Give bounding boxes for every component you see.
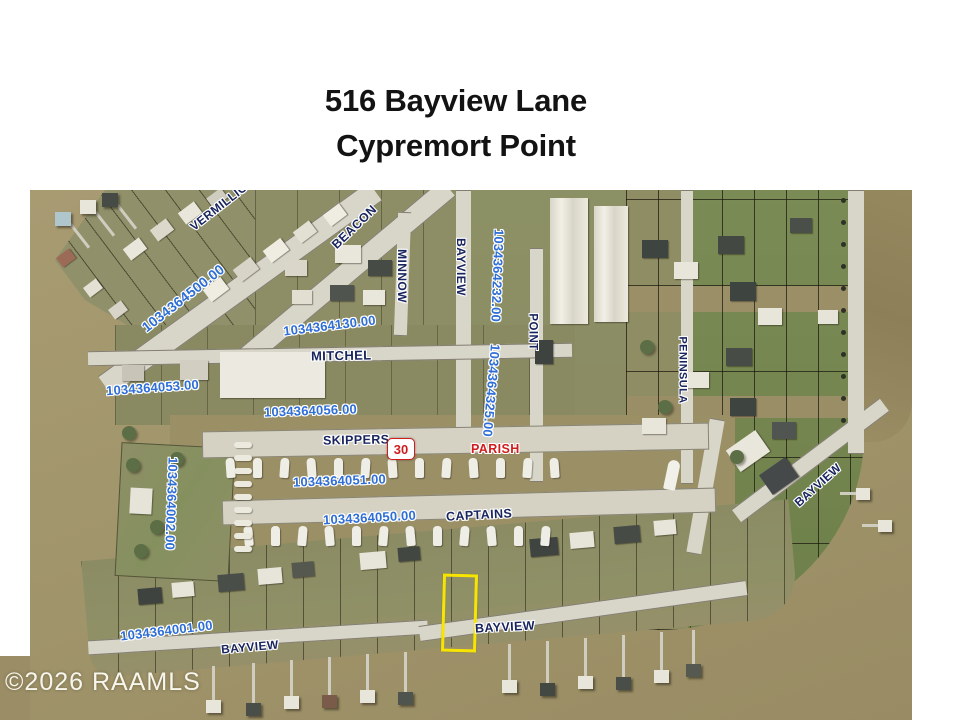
boat <box>496 458 505 478</box>
pier <box>328 657 331 695</box>
boat <box>234 455 252 461</box>
boat <box>234 468 252 474</box>
parish-label: PARISH <box>471 442 520 456</box>
boat <box>540 526 551 547</box>
boat <box>271 526 280 546</box>
boat <box>387 458 397 479</box>
bush <box>841 264 846 269</box>
pier <box>290 660 293 696</box>
boat <box>297 526 308 547</box>
street-label-skippers: SKIPPERS <box>323 432 390 447</box>
pier <box>94 211 115 236</box>
boathouse <box>284 696 299 709</box>
boat <box>234 481 252 487</box>
building <box>220 352 325 398</box>
bush <box>841 418 846 423</box>
bush <box>841 308 846 313</box>
building <box>292 290 312 304</box>
building <box>726 348 752 366</box>
route-30-number: 30 <box>394 442 408 457</box>
building <box>685 372 709 388</box>
building <box>730 282 756 301</box>
tree <box>126 458 140 472</box>
boathouse <box>540 683 555 696</box>
building <box>56 248 76 267</box>
boat <box>486 526 497 547</box>
tree <box>730 450 744 464</box>
pier <box>252 663 255 703</box>
boat <box>253 458 262 478</box>
building <box>674 262 698 279</box>
boat <box>234 520 252 526</box>
boat <box>459 526 470 547</box>
building <box>363 290 385 305</box>
page-title-line2: Cypremort Point <box>0 123 912 168</box>
building <box>293 220 317 243</box>
building <box>368 260 392 276</box>
pier <box>622 635 625 677</box>
building <box>772 422 796 439</box>
page-title-line1: 516 Bayview Lane <box>0 78 912 123</box>
building <box>758 308 782 325</box>
boathouse <box>856 488 870 500</box>
building <box>550 198 588 324</box>
pier <box>404 652 407 692</box>
boat <box>415 458 424 478</box>
boat <box>378 526 389 547</box>
boathouse <box>654 670 669 683</box>
tree <box>122 426 136 440</box>
street-label-mitchel: MITCHEL <box>311 347 372 363</box>
building <box>397 546 420 562</box>
building <box>323 203 347 226</box>
boat <box>234 546 252 552</box>
building <box>150 218 174 241</box>
building <box>359 551 386 570</box>
boathouse <box>578 676 593 689</box>
boat <box>324 526 335 547</box>
tree <box>640 340 654 354</box>
pier <box>584 638 587 676</box>
boat <box>522 458 532 479</box>
boat <box>549 458 559 479</box>
bush <box>841 352 846 357</box>
street-label-peninsula: PENINSULA <box>677 336 689 403</box>
building <box>83 278 103 297</box>
building <box>330 285 354 301</box>
building <box>108 300 128 319</box>
pier <box>660 632 663 670</box>
map-watermark: ©2026 RAAMLS <box>5 668 201 697</box>
boat <box>234 442 252 448</box>
tree <box>134 544 148 558</box>
building <box>257 567 282 585</box>
building <box>642 418 666 434</box>
bush <box>841 396 846 401</box>
boathouse <box>878 520 892 532</box>
building <box>613 525 640 544</box>
pier <box>116 204 137 229</box>
tree <box>658 400 672 414</box>
tree <box>150 520 164 534</box>
aerial-parcel-map: VERMILLION B BEACON MINNOW BAYVIEW POINT… <box>30 190 912 720</box>
pier <box>508 644 511 680</box>
boathouse <box>502 680 517 693</box>
boathouse <box>206 700 221 713</box>
building <box>718 236 744 254</box>
pier <box>212 666 215 700</box>
subject-property-highlight <box>441 574 478 653</box>
boat <box>514 526 523 546</box>
bush <box>841 286 846 291</box>
boat <box>234 494 252 500</box>
boat <box>468 458 478 479</box>
pier <box>546 641 549 683</box>
building <box>129 487 152 514</box>
building <box>642 240 668 258</box>
boathouse <box>322 695 337 708</box>
building <box>594 206 628 322</box>
building <box>730 398 756 416</box>
page-title: 516 Bayview Lane Cypremort Point <box>0 78 912 168</box>
street-label-bayview-north: BAYVIEW <box>454 238 468 296</box>
street-label-point: POINT <box>527 313 539 350</box>
building <box>122 365 144 381</box>
boat <box>352 526 361 546</box>
boathouse <box>246 703 261 716</box>
building <box>123 237 147 260</box>
building <box>818 310 838 324</box>
route-30-shield: 30 <box>387 438 415 460</box>
boat <box>663 459 681 491</box>
boathouse <box>55 212 71 226</box>
building <box>569 531 594 549</box>
bush <box>841 220 846 225</box>
boat <box>441 458 451 479</box>
boathouse <box>360 690 375 703</box>
listing-photo-page: { "title": { "line1": "516 Bayview Lane"… <box>0 0 960 720</box>
building <box>291 561 314 578</box>
boathouse <box>398 692 413 705</box>
building <box>285 260 307 276</box>
boat <box>279 458 289 479</box>
pier <box>69 223 90 248</box>
pier <box>692 630 695 664</box>
street-label-minnow: MINNOW <box>395 249 409 303</box>
boathouse <box>80 200 96 214</box>
boat <box>405 526 416 547</box>
boathouse <box>616 677 631 690</box>
boat <box>234 533 252 539</box>
boathouse <box>102 193 118 207</box>
building <box>171 581 194 598</box>
bush <box>841 374 846 379</box>
building <box>137 587 162 605</box>
boathouse <box>686 664 701 677</box>
bush <box>841 330 846 335</box>
building <box>233 257 260 282</box>
building <box>790 218 812 233</box>
bush <box>841 242 846 247</box>
bush <box>841 198 846 203</box>
building <box>653 519 676 536</box>
pier <box>366 654 369 690</box>
building <box>217 573 244 592</box>
boat <box>234 507 252 513</box>
building <box>759 457 799 495</box>
boat <box>433 526 442 546</box>
